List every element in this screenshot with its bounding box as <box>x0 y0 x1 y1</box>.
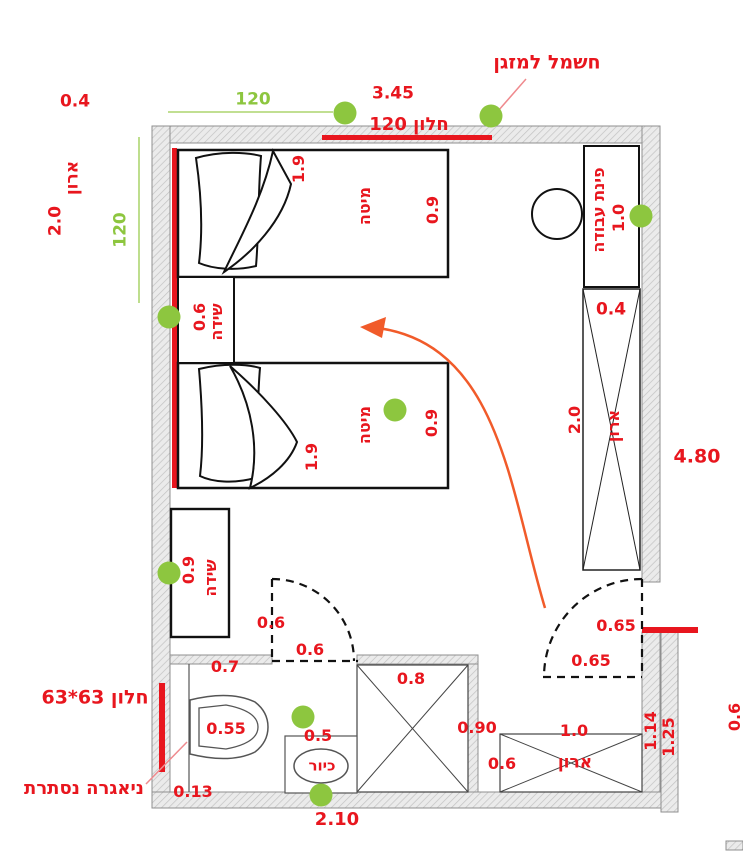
window-top-label: חלון 120 <box>369 116 448 134</box>
bed1-width: 0.9 <box>425 196 441 224</box>
bed2-width: 0.9 <box>424 409 440 437</box>
nightstand-name: שידה <box>209 303 225 340</box>
dresser-name: שידה <box>203 559 219 596</box>
bath-door-dim-a: 0.6 <box>257 615 285 631</box>
outlet-dot-top-left <box>334 102 357 125</box>
closet-bottom-name: ארון <box>558 755 592 772</box>
bath-window-label: חלון 63*63 <box>41 689 148 708</box>
right-wall-length: 4.80 <box>674 448 721 467</box>
wall-segment-inner-dim: 1.14 <box>643 711 659 750</box>
nightstand-width: 0.6 <box>192 303 208 331</box>
cistern-depth: 0.13 <box>173 784 212 800</box>
outlet-dot-nightstand <box>158 306 181 329</box>
main-door-dim-a: 0.65 <box>596 618 635 634</box>
bed1-name: מיטה <box>357 187 373 225</box>
ac-power-label: חשמל למזגן <box>493 54 600 73</box>
outlet-dot-bed2 <box>384 399 407 422</box>
bath-cabinet-side: 0.90 <box>457 720 496 736</box>
bed1-length: 1.9 <box>291 155 307 183</box>
green-dim-left: 120 <box>113 212 130 248</box>
outlet-dot-desk <box>630 205 653 228</box>
bath-door-dim-b: 0.6 <box>296 642 324 658</box>
door-side-marker <box>642 627 698 633</box>
closet-bottom-length: 1.0 <box>560 723 588 739</box>
work-corner-width: 1.0 <box>611 204 627 232</box>
bath-width: 2.10 <box>315 811 359 829</box>
floor-plan: 0.4 ארון 2.0 120 120 3.45 חלון 120 חשמל … <box>0 0 743 862</box>
wall-fragment-bottom-right <box>726 841 743 850</box>
closet-bottom-depth: 0.6 <box>488 756 516 772</box>
bed2-length: 1.9 <box>304 443 320 471</box>
closet-right-name: ארון <box>606 410 622 442</box>
wall-right-upper <box>642 126 660 582</box>
closet-left-length: 2.0 <box>48 206 65 236</box>
closet-left-name: ארון <box>65 161 82 195</box>
wall-bathroom-right-seg <box>357 655 478 664</box>
sink-label: כיור <box>308 759 335 774</box>
bath-cabinet-dim: 0.8 <box>397 671 425 687</box>
ac-leader-line <box>498 79 526 111</box>
outlet-dot-ac <box>480 105 503 128</box>
chair <box>532 189 582 239</box>
wall-segment-outer-dim: 1.25 <box>661 717 677 756</box>
bath-wall-dim: 0.7 <box>211 659 239 675</box>
green-dim-top: 120 <box>235 92 271 109</box>
closet-right-length: 2.0 <box>567 406 583 434</box>
cistern-label: ניאגרה נסתרת <box>24 780 144 798</box>
wall-bottom <box>152 792 661 808</box>
work-corner-depth: 0.4 <box>596 302 626 319</box>
toilet-width: 0.55 <box>206 721 245 737</box>
main-door-dim-b: 0.65 <box>571 653 610 669</box>
dresser-width: 0.9 <box>181 556 197 584</box>
window-top-marker <box>322 135 492 140</box>
sink-width: 0.5 <box>304 728 332 744</box>
work-corner-name: פינת עבודה <box>591 167 607 252</box>
top-wall-length: 3.45 <box>372 86 414 103</box>
outlet-dot-sink <box>310 784 333 807</box>
closet-left-depth: 0.4 <box>60 94 90 111</box>
bed-1-pillow <box>196 153 261 269</box>
right-wall-bottom-dim: 0.6 <box>727 703 743 731</box>
window-bath-marker <box>159 683 165 772</box>
entry-arrow-head <box>360 317 386 338</box>
outlet-dot-dresser <box>158 562 181 585</box>
bed2-name: מיטה <box>357 406 373 444</box>
